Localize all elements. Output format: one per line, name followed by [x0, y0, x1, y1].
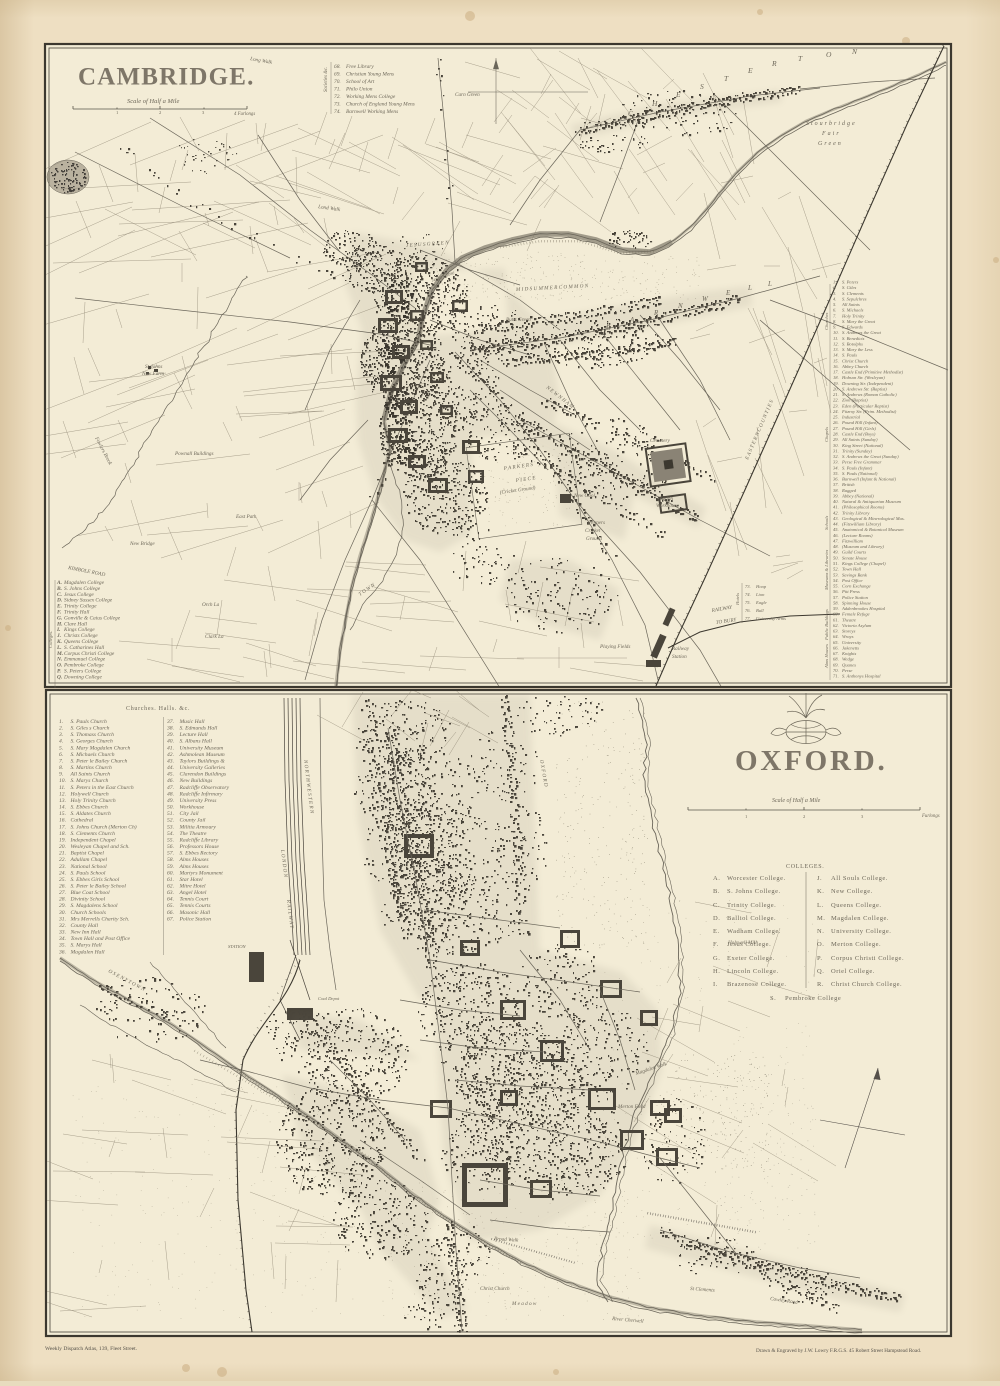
- svg-text:70.: 70.: [334, 79, 341, 85]
- svg-text:56.: 56.: [167, 844, 174, 850]
- svg-text:Victoria Asylum: Victoria Asylum: [842, 623, 872, 628]
- svg-text:64.: 64.: [833, 634, 839, 639]
- svg-text:46.: 46.: [167, 778, 174, 784]
- svg-text:New Gaol: New Gaol: [573, 493, 595, 499]
- svg-text:(Lecture Rooms): (Lecture Rooms): [842, 533, 873, 538]
- svg-text:Merton Field: Merton Field: [617, 1104, 646, 1110]
- svg-text:13.: 13.: [59, 798, 66, 804]
- svg-text:New Buildings: New Buildings: [179, 778, 213, 784]
- svg-text:21.: 21.: [59, 851, 66, 857]
- svg-text:E: E: [725, 289, 731, 297]
- svg-text:Divinity School: Divinity School: [70, 897, 106, 903]
- svg-text:52.: 52.: [833, 567, 839, 572]
- svg-text:15.: 15.: [59, 811, 66, 817]
- svg-text:67.: 67.: [167, 916, 174, 922]
- svg-text:68.: 68.: [833, 657, 839, 662]
- svg-text:E: E: [675, 90, 682, 99]
- svg-text:12.: 12.: [59, 791, 66, 797]
- svg-text:B.: B.: [713, 888, 720, 895]
- svg-text:43.: 43.: [833, 516, 839, 521]
- svg-text:Balliol College.: Balliol College.: [727, 915, 776, 922]
- svg-text:19.: 19.: [59, 837, 66, 843]
- svg-text:Ashmolean Museum: Ashmolean Museum: [179, 752, 225, 758]
- svg-text:F.: F.: [713, 941, 719, 948]
- svg-text:7.: 7.: [833, 313, 836, 318]
- svg-text:Jakenetts: Jakenetts: [842, 646, 859, 651]
- svg-text:Fitzwilliam: Fitzwilliam: [841, 539, 864, 544]
- svg-text:3.: 3.: [58, 732, 63, 738]
- svg-text:72.: 72.: [334, 94, 341, 100]
- svg-text:(Philosophical Rooms): (Philosophical Rooms): [842, 505, 885, 510]
- svg-text:56.: 56.: [833, 589, 839, 594]
- svg-text:Worcester College.: Worcester College.: [727, 875, 786, 882]
- svg-text:Ragged: Ragged: [841, 488, 857, 493]
- svg-text:35.: 35.: [833, 471, 839, 476]
- svg-text:S. Pauls (Infant): S. Pauls (Infant): [842, 465, 873, 470]
- svg-text:C.: C.: [713, 902, 720, 909]
- svg-text:T: T: [798, 54, 803, 63]
- svg-text:Ground: Ground: [586, 536, 602, 542]
- svg-text:E.: E.: [713, 928, 720, 935]
- svg-text:Female Refuge: Female Refuge: [841, 612, 870, 617]
- svg-text:71.: 71.: [334, 87, 341, 93]
- svg-text:S. Pauls: S. Pauls: [842, 353, 857, 358]
- svg-text:Anatomical & Botanical Museum: Anatomical & Botanical Museum: [841, 527, 904, 532]
- svg-text:74.: 74.: [334, 109, 341, 115]
- svg-text:R: R: [771, 59, 778, 68]
- svg-text:4 Furlongs: 4 Furlongs: [234, 112, 255, 117]
- svg-text:23.: 23.: [59, 864, 66, 870]
- svg-text:58.: 58.: [167, 857, 174, 863]
- svg-text:The Theatre: The Theatre: [180, 831, 207, 837]
- svg-text:37.: 37.: [833, 482, 839, 487]
- svg-text:Theatre: Theatre: [842, 617, 856, 622]
- svg-text:29.: 29.: [833, 437, 839, 442]
- svg-text:18.: 18.: [833, 375, 839, 380]
- svg-text:All Souls College.: All Souls College.: [831, 875, 888, 882]
- svg-text:Lincoln College.: Lincoln College.: [727, 968, 779, 975]
- svg-text:Holy Trinity: Holy Trinity: [841, 313, 865, 318]
- svg-text:Scale of Half a Mile: Scale of Half a Mile: [772, 797, 821, 804]
- svg-text:36.: 36.: [833, 477, 839, 482]
- svg-text:38.: 38.: [833, 488, 839, 493]
- svg-text:8.: 8.: [833, 319, 836, 324]
- svg-text:Holy Trinity Church: Holy Trinity Church: [70, 798, 116, 804]
- svg-text:26.: 26.: [833, 420, 839, 425]
- svg-text:D.: D.: [713, 915, 720, 922]
- svg-text:S. Aldates Church: S. Aldates Church: [71, 811, 111, 817]
- svg-text:Independent Chapel: Independent Chapel: [70, 837, 117, 843]
- svg-text:Railway: Railway: [671, 646, 690, 652]
- svg-text:I.: I.: [713, 981, 718, 988]
- svg-text:CAMBRIDGE.: CAMBRIDGE.: [78, 64, 255, 91]
- svg-text:Christ Church College.: Christ Church College.: [831, 981, 902, 988]
- svg-text:Baptist Chapel: Baptist Chapel: [71, 851, 105, 857]
- svg-text:49.: 49.: [833, 550, 839, 555]
- svg-text:Bull: Bull: [756, 608, 764, 613]
- svg-text:38.: 38.: [166, 726, 174, 732]
- svg-text:29.: 29.: [59, 903, 66, 909]
- svg-text:19.: 19.: [833, 381, 839, 386]
- svg-text:Public Buildings: Public Buildings: [824, 609, 829, 641]
- svg-text:40.: 40.: [167, 739, 174, 745]
- svg-text:University College.: University College.: [831, 928, 891, 935]
- svg-text:S. Botolphs: S. Botolphs: [842, 341, 863, 346]
- svg-text:51.: 51.: [167, 811, 174, 817]
- svg-text:8.: 8.: [59, 765, 63, 771]
- svg-text:Schools: Schools: [824, 515, 829, 530]
- svg-text:68.: 68.: [334, 64, 341, 70]
- svg-text:S. Pauls School: S. Pauls School: [71, 870, 106, 876]
- svg-text:47.: 47.: [833, 539, 839, 544]
- svg-text:B: B: [606, 324, 611, 332]
- svg-text:62.: 62.: [833, 623, 839, 628]
- svg-text:28.: 28.: [833, 432, 839, 437]
- svg-text:31.: 31.: [58, 916, 66, 922]
- svg-text:Merton College.: Merton College.: [831, 941, 881, 948]
- svg-text:28.: 28.: [59, 897, 66, 903]
- svg-text:54.: 54.: [833, 578, 839, 583]
- svg-text:Castle End (Primitive Methodis: Castle End (Primitive Methodist): [842, 370, 904, 375]
- svg-text:Fair: Fair: [821, 131, 841, 137]
- svg-text:County Jail: County Jail: [180, 818, 206, 824]
- svg-text:Station: Station: [672, 654, 687, 660]
- svg-text:Christ Church: Christ Church: [480, 1286, 510, 1292]
- svg-text:East Path: East Path: [235, 514, 257, 520]
- svg-text:New Bridge: New Bridge: [129, 541, 155, 547]
- svg-text:Militia Armoury: Militia Armoury: [179, 824, 217, 830]
- svg-text:O.: O.: [817, 941, 824, 948]
- svg-text:20.: 20.: [833, 387, 839, 392]
- svg-text:Adullam Chapel: Adullam Chapel: [70, 857, 108, 863]
- svg-text:Professors House: Professors House: [179, 843, 220, 850]
- svg-text:Churches. Halls. &c.: Churches. Halls. &c.: [126, 706, 190, 712]
- svg-text:Christian Young Mens: Christian Young Mens: [346, 72, 394, 78]
- svg-text:4.: 4.: [59, 739, 63, 745]
- svg-text:S. Andrews Str. (Baptist): S. Andrews Str. (Baptist): [842, 387, 887, 392]
- svg-text:British: British: [842, 482, 855, 487]
- svg-text:57.: 57.: [167, 851, 174, 857]
- svg-text:Eden (Particular Baptist): Eden (Particular Baptist): [841, 403, 889, 408]
- svg-text:S. Johns College.: S. Johns College.: [727, 888, 781, 895]
- svg-text:Downing Str. (Independent): Downing Str. (Independent): [841, 381, 893, 386]
- svg-text:OXFORD.: OXFORD.: [735, 745, 888, 777]
- svg-text:32.: 32.: [833, 454, 839, 459]
- svg-text:E: E: [747, 66, 754, 75]
- svg-text:Barnwell (Infant & National): Barnwell (Infant & National): [842, 477, 896, 482]
- svg-text:S. Mary the Less: S. Mary the Less: [842, 347, 873, 352]
- svg-text:76.: 76.: [745, 608, 751, 613]
- svg-text:Holywell Church: Holywell Church: [70, 791, 109, 797]
- svg-text:Mitre Hotel: Mitre Hotel: [179, 884, 206, 890]
- svg-text:23.: 23.: [833, 403, 839, 408]
- svg-text:24.: 24.: [833, 409, 839, 414]
- svg-text:Workhouse: Workhouse: [180, 805, 205, 811]
- svg-text:69.: 69.: [334, 72, 341, 78]
- svg-text:S: S: [700, 82, 705, 91]
- svg-text:27.: 27.: [59, 890, 66, 896]
- svg-text:Cathedral: Cathedral: [71, 818, 94, 824]
- svg-text:63.: 63.: [167, 890, 174, 896]
- svg-text:S. Edwards: S. Edwards: [842, 325, 863, 330]
- svg-text:S. Ebbes Girls School: S. Ebbes Girls School: [71, 877, 120, 883]
- svg-text:67.: 67.: [833, 651, 839, 656]
- svg-text:All Saints (Sunday): All Saints (Sunday): [841, 437, 878, 442]
- svg-text:S. Peter le Bailey Church: S. Peter le Bailey Church: [71, 759, 128, 765]
- svg-text:30.: 30.: [833, 443, 839, 448]
- svg-text:S. Georges Church: S. Georges Church: [71, 739, 114, 745]
- svg-text:45.: 45.: [167, 772, 174, 778]
- svg-text:Wadham College.: Wadham College.: [727, 928, 781, 935]
- svg-text:Trinity Library: Trinity Library: [842, 510, 870, 515]
- svg-text:S. Mary the Great: S. Mary the Great: [842, 319, 876, 324]
- svg-text:Weekly Dispatch Atlas, 139, Fl: Weekly Dispatch Atlas, 139, Fleet Street…: [45, 1346, 138, 1352]
- svg-text:Philo Union: Philo Union: [345, 87, 373, 93]
- svg-text:S. Michaels: S. Michaels: [842, 308, 864, 313]
- svg-text:S. Giles s Church: S. Giles s Church: [71, 726, 110, 732]
- svg-text:K.: K.: [817, 888, 824, 895]
- svg-text:2.: 2.: [833, 285, 836, 290]
- svg-text:5.: 5.: [833, 302, 836, 307]
- svg-text:Tennis Courts: Tennis Courts: [180, 903, 211, 909]
- svg-text:Lecture Hall: Lecture Hall: [179, 732, 209, 738]
- svg-text:S. Magdalens School: S. Magdalens School: [71, 903, 119, 909]
- svg-text:1.: 1.: [833, 280, 836, 285]
- svg-text:7.: 7.: [59, 759, 63, 765]
- svg-text:Town Hall and Post Office: Town Hall and Post Office: [71, 935, 131, 942]
- svg-text:53.: 53.: [833, 572, 839, 577]
- svg-text:All Saints: All Saints: [841, 302, 860, 307]
- svg-text:70.: 70.: [833, 668, 839, 673]
- svg-text:Natural & Antiquarian Museum: Natural & Antiquarian Museum: [841, 499, 902, 504]
- svg-text:26.: 26.: [59, 884, 66, 890]
- svg-text:44.: 44.: [167, 765, 174, 771]
- svg-text:Music Hall: Music Hall: [179, 719, 205, 725]
- svg-text:S. Pauls Church: S. Pauls Church: [71, 719, 108, 725]
- svg-text:Radcliffe Infirmary: Radcliffe Infirmary: [179, 790, 224, 797]
- svg-text:13.: 13.: [833, 347, 839, 352]
- svg-text:STATION: STATION: [228, 944, 247, 949]
- svg-text:15.: 15.: [833, 358, 839, 363]
- svg-text:University Arms: University Arms: [756, 616, 786, 621]
- svg-text:22.: 22.: [833, 398, 839, 403]
- svg-text:R: R: [653, 309, 659, 317]
- svg-text:Magdalen College.: Magdalen College.: [831, 915, 889, 922]
- svg-text:S. Andrews (Roman Catholic): S. Andrews (Roman Catholic): [842, 392, 897, 397]
- svg-text:6.: 6.: [59, 752, 63, 758]
- svg-text:Clark La: Clark La: [205, 634, 224, 640]
- svg-text:Orch La: Orch La: [202, 602, 220, 608]
- svg-text:Colleges.: Colleges.: [48, 631, 53, 648]
- svg-text:S. Mary Magdalen Church: S. Mary Magdalen Church: [71, 745, 131, 751]
- svg-text:37.: 37.: [166, 719, 174, 725]
- svg-text:P.: P.: [817, 955, 823, 962]
- svg-text:61.: 61.: [167, 877, 174, 883]
- svg-text:S. Giles: S. Giles: [842, 285, 857, 290]
- svg-text:47.: 47.: [167, 785, 174, 791]
- svg-text:46.: 46.: [833, 533, 839, 538]
- svg-text:39.: 39.: [166, 732, 174, 738]
- svg-text:60.: 60.: [833, 612, 839, 617]
- svg-text:Chapels: Chapels: [824, 427, 829, 442]
- svg-text:Workhouse: Workhouse: [656, 503, 680, 509]
- svg-text:30.: 30.: [58, 910, 66, 916]
- svg-text:1.: 1.: [59, 719, 63, 725]
- svg-text:Stourbridge: Stourbridge: [806, 121, 857, 127]
- svg-text:Alms Houses: Alms Houses: [179, 864, 209, 870]
- svg-text:Abbey Church: Abbey Church: [841, 364, 869, 369]
- svg-text:27.: 27.: [833, 426, 839, 431]
- svg-text:Societies &c.: Societies &c.: [324, 67, 329, 92]
- svg-text:S. Edmunds Hall: S. Edmunds Hall: [180, 726, 218, 732]
- svg-text:University Galleries: University Galleries: [180, 765, 226, 771]
- svg-text:1: 1: [116, 110, 118, 115]
- svg-text:University Museum: University Museum: [180, 745, 224, 751]
- svg-text:Pound Hill (Infant): Pound Hill (Infant): [841, 420, 878, 425]
- svg-text:Furlongs: Furlongs: [921, 814, 940, 819]
- svg-text:58.: 58.: [833, 600, 839, 605]
- svg-text:18.: 18.: [59, 831, 66, 837]
- svg-text:65.: 65.: [833, 640, 839, 645]
- svg-text:King Street (National): King Street (National): [841, 443, 883, 448]
- svg-text:Pembroke College: Pembroke College: [785, 995, 841, 1002]
- svg-text:Union: Union: [660, 496, 673, 502]
- svg-text:School of Art: School of Art: [346, 78, 375, 85]
- svg-text:Museums & Libraries: Museums & Libraries: [824, 549, 829, 591]
- svg-text:A: A: [629, 316, 635, 324]
- svg-text:Storeys: Storeys: [842, 629, 856, 634]
- svg-text:Queens College.: Queens College.: [831, 902, 881, 909]
- svg-text:S. Sepulchres: S. Sepulchres: [842, 296, 867, 301]
- svg-text:M e a d o w: M e a d o w: [511, 1301, 537, 1307]
- svg-text:O: O: [826, 50, 832, 59]
- svg-text:24.: 24.: [59, 870, 66, 876]
- svg-text:Alms Houses: Alms Houses: [824, 644, 829, 669]
- svg-text:Abbey (National): Abbey (National): [841, 493, 874, 498]
- svg-text:71.: 71.: [833, 674, 839, 679]
- svg-text:Perse: Perse: [841, 668, 852, 673]
- svg-text:Cricket: Cricket: [585, 528, 601, 534]
- svg-text:S. Michaels Church: S. Michaels Church: [71, 752, 115, 758]
- svg-text:2.: 2.: [59, 726, 63, 732]
- svg-text:J.: J.: [817, 875, 822, 882]
- svg-text:S. Thomass Church: S. Thomass Church: [71, 732, 115, 738]
- svg-text:Working Mens College: Working Mens College: [346, 94, 396, 100]
- svg-text:41.: 41.: [167, 745, 174, 751]
- svg-text:Spinning House: Spinning House: [842, 600, 871, 605]
- svg-text:S. Peters in the East Church: S. Peters in the East Church: [71, 785, 134, 791]
- svg-text:Cemetery: Cemetery: [650, 438, 671, 444]
- svg-text:Wesleyan Chapel and Sch.: Wesleyan Chapel and Sch.: [71, 844, 130, 850]
- svg-text:20.: 20.: [59, 844, 66, 850]
- svg-text:COLLEGES.: COLLEGES.: [786, 864, 824, 870]
- svg-text:Drawn & Engraved by J.W. Lowry: Drawn & Engraved by J.W. Lowry F.R.G.S. …: [756, 1348, 921, 1354]
- svg-text:42.: 42.: [167, 752, 174, 758]
- svg-text:All Saints Church: All Saints Church: [70, 772, 111, 778]
- svg-text:Martyrs Monument: Martyrs Monument: [179, 870, 224, 876]
- svg-text:41.: 41.: [833, 505, 839, 510]
- svg-text:S. Clements: S. Clements: [842, 291, 864, 296]
- svg-text:Coal Depot: Coal Depot: [318, 996, 340, 1001]
- svg-text:44.: 44.: [833, 522, 839, 527]
- svg-text:31.: 31.: [833, 448, 839, 453]
- svg-text:H.: H.: [713, 968, 720, 975]
- svg-text:4.: 4.: [833, 296, 836, 301]
- svg-text:Downing College: Downing College: [63, 674, 102, 680]
- svg-text:S. Peters: S. Peters: [842, 280, 859, 285]
- svg-text:60.: 60.: [167, 870, 174, 876]
- svg-text:16.: 16.: [833, 364, 839, 369]
- svg-text:6.: 6.: [833, 308, 836, 313]
- svg-text:Pownall Buildings: Pownall Buildings: [174, 451, 213, 457]
- svg-text:S. Andrews the Great: S. Andrews the Great: [842, 330, 882, 335]
- svg-text:L: L: [747, 284, 752, 292]
- svg-text:73.: 73.: [334, 102, 341, 108]
- svg-text:Trinity (Sunday): Trinity (Sunday): [842, 448, 872, 453]
- svg-text:2: 2: [803, 814, 805, 819]
- svg-text:62.: 62.: [167, 884, 174, 890]
- svg-text:National School: National School: [70, 864, 108, 870]
- svg-text:Lion: Lion: [755, 592, 765, 597]
- svg-text:33.: 33.: [833, 460, 839, 465]
- svg-text:43.: 43.: [167, 759, 174, 765]
- svg-text:45.: 45.: [833, 527, 839, 532]
- svg-text:77.: 77.: [745, 616, 751, 621]
- svg-text:Eagle: Eagle: [755, 600, 767, 605]
- svg-text:S. Albans Hall: S. Albans Hall: [180, 739, 213, 745]
- svg-text:Police Station: Police Station: [841, 595, 869, 600]
- svg-text:14.: 14.: [59, 805, 66, 811]
- svg-text:Scale of Half a Mile: Scale of Half a Mile: [127, 98, 179, 105]
- svg-text:Savings Bank: Savings Bank: [842, 572, 868, 577]
- svg-text:32.: 32.: [58, 923, 66, 929]
- svg-text:N: N: [851, 47, 858, 56]
- svg-text:L.: L.: [817, 902, 824, 909]
- svg-text:Tennis Court: Tennis Court: [180, 897, 209, 903]
- svg-text:69.: 69.: [833, 662, 839, 667]
- svg-text:21.: 21.: [833, 392, 839, 397]
- svg-text:48.: 48.: [833, 544, 839, 549]
- svg-text:Guild Courts: Guild Courts: [842, 550, 866, 555]
- svg-text:S. Anthonys Hospital: S. Anthonys Hospital: [842, 674, 881, 679]
- svg-text:S. Ebbes Rectory: S. Ebbes Rectory: [180, 851, 219, 857]
- svg-text:49.: 49.: [167, 798, 174, 804]
- svg-text:City Jail: City Jail: [180, 811, 200, 817]
- svg-text:34.: 34.: [58, 936, 66, 942]
- svg-text:50.: 50.: [833, 555, 839, 560]
- svg-text:53.: 53.: [167, 824, 174, 830]
- svg-text:Barnwell Working Mens: Barnwell Working Mens: [346, 109, 398, 115]
- svg-text:Pound Hill (Girls): Pound Hill (Girls): [841, 426, 876, 431]
- svg-text:35.: 35.: [58, 943, 66, 949]
- svg-text:Clarendon Buildings: Clarendon Buildings: [180, 772, 227, 778]
- svg-text:S.: S.: [770, 995, 776, 1002]
- svg-text:66.: 66.: [833, 646, 839, 651]
- svg-text:Brazenose College.: Brazenose College.: [727, 981, 787, 988]
- svg-text:25.: 25.: [59, 877, 66, 883]
- svg-text:S. Marys Church: S. Marys Church: [71, 778, 109, 784]
- svg-text:S. Martins Church: S. Martins Church: [71, 765, 112, 771]
- svg-text:1: 1: [745, 814, 747, 819]
- svg-text:Church of England Young Mens: Church of England Young Mens: [346, 101, 415, 108]
- svg-text:Senate House: Senate House: [842, 555, 867, 560]
- svg-text:Blue Coat School: Blue Coat School: [71, 890, 111, 896]
- svg-text:55.: 55.: [833, 584, 839, 589]
- svg-text:Angel Hotel: Angel Hotel: [179, 890, 207, 896]
- svg-text:Alms Houses: Alms Houses: [179, 857, 209, 863]
- svg-text:Fitzroy Str. (Prim. Methodist): Fitzroy Str. (Prim. Methodist): [841, 409, 897, 414]
- svg-text:Corpus Christi College.: Corpus Christi College.: [831, 955, 904, 962]
